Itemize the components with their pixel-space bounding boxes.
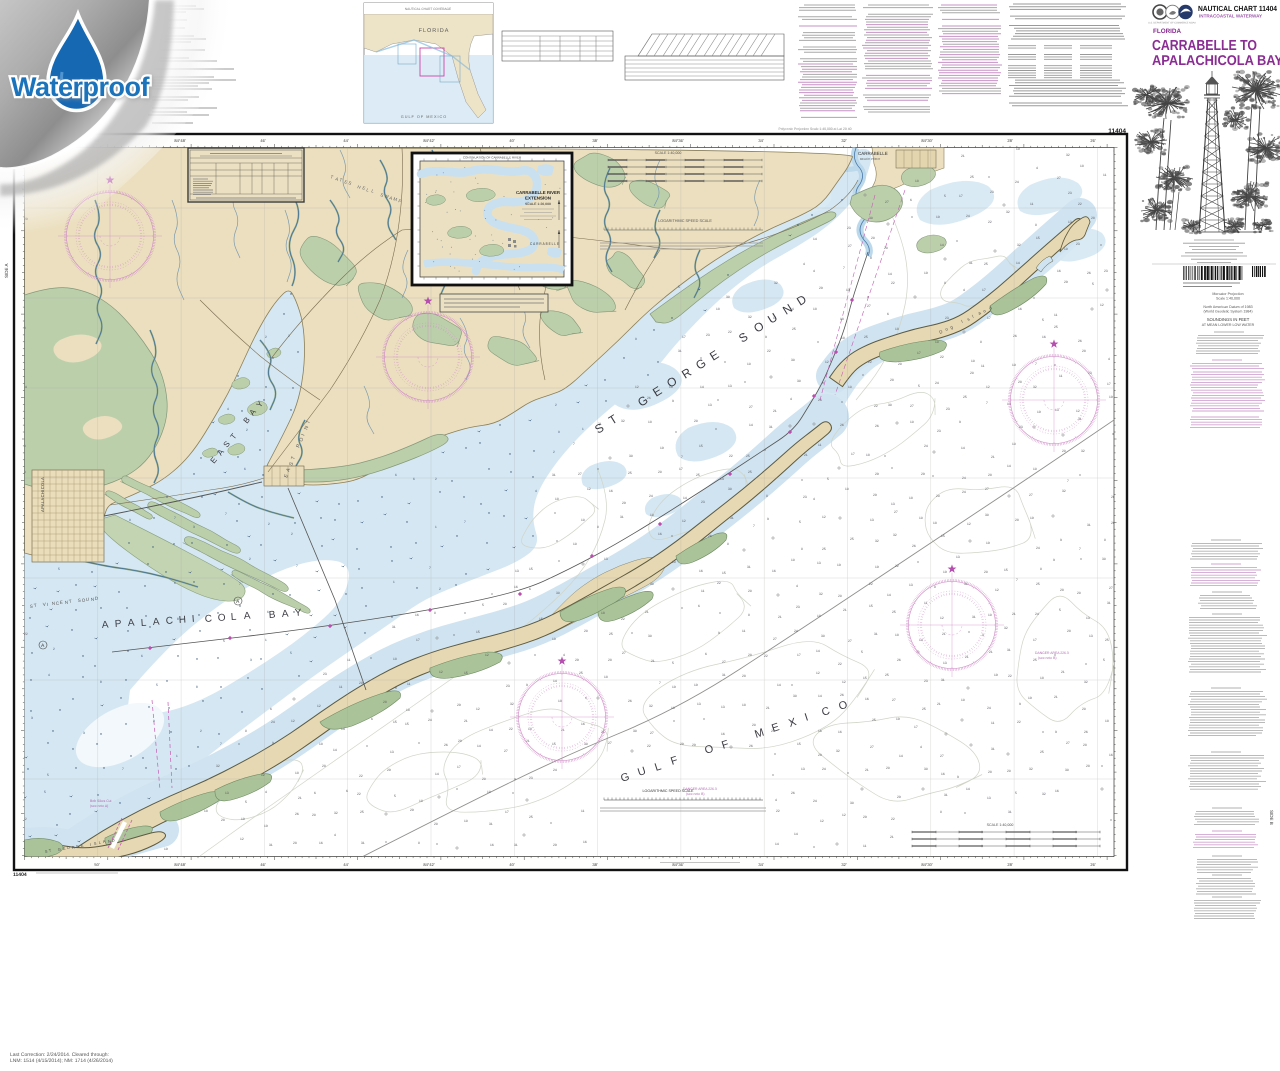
svg-text:24: 24: [1015, 180, 1019, 184]
svg-text:7: 7: [429, 566, 431, 570]
svg-text:30: 30: [924, 767, 928, 771]
svg-text:4: 4: [334, 833, 336, 837]
svg-text:15: 15: [405, 722, 409, 726]
svg-text:16: 16: [1042, 335, 1046, 339]
svg-text:6: 6: [529, 587, 531, 591]
svg-text:26: 26: [628, 699, 632, 703]
svg-text:17: 17: [416, 638, 420, 642]
svg-text:31: 31: [944, 793, 948, 797]
svg-text:25: 25: [922, 707, 926, 711]
svg-text:24: 24: [813, 799, 817, 803]
svg-text:7: 7: [1016, 578, 1018, 582]
svg-text:26: 26: [708, 534, 712, 538]
svg-text:14: 14: [700, 385, 704, 389]
svg-text:31: 31: [722, 673, 726, 677]
svg-text:24: 24: [962, 490, 966, 494]
svg-text:22: 22: [874, 404, 878, 408]
svg-text:15: 15: [699, 444, 703, 448]
svg-text:6: 6: [270, 707, 272, 711]
svg-text:6: 6: [705, 652, 707, 656]
svg-text:25: 25: [892, 610, 896, 614]
svg-text:21: 21: [766, 706, 770, 710]
svg-text:12: 12: [820, 819, 824, 823]
svg-text:26: 26: [1087, 271, 1091, 275]
svg-text:34': 34': [758, 138, 763, 143]
svg-text:9: 9: [765, 335, 767, 339]
svg-text:32: 32: [748, 315, 752, 319]
svg-text:23: 23: [1076, 242, 1080, 246]
svg-text:6: 6: [346, 789, 348, 793]
svg-text:S: S: [30, 604, 34, 609]
svg-text:INTRACOASTAL WATERWAY: INTRACOASTAL WATERWAY: [1199, 14, 1262, 19]
svg-text:4: 4: [790, 397, 792, 401]
svg-text:28: 28: [1067, 629, 1071, 633]
svg-text:16: 16: [1109, 753, 1113, 757]
svg-text:22: 22: [988, 220, 992, 224]
svg-text:27: 27: [1109, 586, 1113, 590]
svg-text:25: 25: [984, 262, 988, 266]
svg-text:31: 31: [620, 515, 624, 519]
svg-text:8: 8: [944, 281, 946, 285]
svg-text:32: 32: [621, 419, 625, 423]
svg-text:84°30': 84°30': [921, 138, 932, 143]
svg-text:13: 13: [817, 561, 821, 565]
svg-text:32: 32: [819, 592, 823, 596]
svg-text:25: 25: [628, 471, 632, 475]
svg-text:31: 31: [269, 843, 273, 847]
svg-text:14: 14: [477, 744, 481, 748]
svg-text:22: 22: [509, 727, 513, 731]
svg-text:11: 11: [1030, 202, 1034, 206]
svg-text:30: 30: [650, 582, 654, 586]
svg-text:27: 27: [1066, 741, 1070, 745]
svg-text:Y: Y: [294, 608, 302, 619]
svg-text:CONTINUATION OF CARRABELLE RIV: CONTINUATION OF CARRABELLE RIVER: [463, 156, 522, 160]
svg-text:84°48': 84°48': [174, 138, 185, 143]
svg-text:APALACHICOLA BAY: APALACHICOLA BAY: [1152, 53, 1280, 69]
svg-text:28: 28: [988, 770, 992, 774]
svg-text:5: 5: [58, 567, 60, 571]
svg-text:27: 27: [910, 404, 914, 408]
svg-text:5: 5: [482, 603, 484, 607]
svg-text:28: 28: [293, 841, 297, 845]
svg-text:14: 14: [940, 243, 944, 247]
svg-text:O: O: [217, 612, 226, 624]
svg-text:10: 10: [971, 359, 975, 363]
svg-text:28: 28: [1060, 588, 1064, 592]
svg-text:5: 5: [799, 520, 801, 524]
svg-text:13: 13: [515, 569, 519, 573]
svg-text:31: 31: [941, 678, 945, 682]
svg-text:18: 18: [895, 327, 899, 331]
svg-text:18: 18: [909, 496, 913, 500]
svg-text:24: 24: [962, 476, 966, 480]
svg-text:H: H: [178, 615, 186, 626]
svg-text:23: 23: [945, 316, 949, 320]
svg-text:21: 21: [991, 455, 995, 459]
svg-text:20: 20: [838, 594, 842, 598]
svg-text:21: 21: [651, 659, 655, 663]
svg-text:18: 18: [895, 633, 899, 637]
svg-text:12: 12: [317, 704, 321, 708]
svg-text:26: 26: [749, 744, 753, 748]
svg-text:20: 20: [658, 470, 662, 474]
svg-text:9: 9: [718, 631, 720, 635]
svg-text:28: 28: [890, 378, 894, 382]
svg-text:14: 14: [887, 593, 891, 597]
svg-text:18: 18: [716, 307, 720, 311]
svg-text:22: 22: [776, 809, 780, 813]
svg-text:18: 18: [555, 497, 559, 501]
svg-text:16: 16: [818, 729, 822, 733]
svg-text:31: 31: [392, 625, 396, 629]
svg-text:22: 22: [729, 454, 733, 458]
svg-text:18: 18: [1080, 164, 1084, 168]
svg-text:18: 18: [915, 179, 919, 183]
svg-text:21: 21: [843, 608, 847, 612]
svg-text:5: 5: [47, 773, 49, 777]
svg-text:13: 13: [846, 288, 850, 292]
svg-text:28': 28': [1007, 862, 1012, 867]
svg-text:7: 7: [239, 582, 241, 586]
svg-text:25: 25: [609, 632, 613, 636]
svg-text:8: 8: [980, 340, 982, 344]
svg-text:32: 32: [1042, 792, 1046, 796]
svg-text:AT MEAN LOWER LOW WATER: AT MEAN LOWER LOW WATER: [1202, 323, 1255, 327]
svg-text:13: 13: [1086, 616, 1090, 620]
svg-text:8: 8: [940, 810, 942, 814]
svg-text:8: 8: [801, 547, 803, 551]
svg-text:9: 9: [558, 430, 560, 434]
svg-text:5: 5: [156, 683, 158, 687]
svg-text:8: 8: [870, 256, 872, 260]
svg-text:A: A: [152, 617, 160, 628]
svg-text:11: 11: [339, 685, 343, 689]
svg-text:12: 12: [825, 360, 829, 364]
svg-text:Polyconic Projection Scale 1: Polyconic Projection Scale 1:40,000 at L…: [779, 127, 852, 131]
svg-text:14: 14: [749, 423, 753, 427]
svg-text:10: 10: [961, 698, 965, 702]
svg-text:27: 27: [749, 405, 753, 409]
svg-text:22: 22: [24, 632, 28, 636]
svg-text:5: 5: [944, 194, 946, 198]
svg-text:30: 30: [869, 216, 873, 220]
svg-text:11: 11: [347, 658, 351, 662]
svg-text:6: 6: [910, 198, 912, 202]
svg-text:15: 15: [941, 534, 945, 538]
svg-text:6: 6: [413, 477, 415, 481]
svg-text:5: 5: [1042, 318, 1044, 322]
svg-text:26: 26: [912, 544, 916, 548]
svg-text:13: 13: [891, 502, 895, 506]
svg-text:21: 21: [804, 453, 808, 457]
svg-text:20: 20: [1007, 769, 1011, 773]
svg-text:8: 8: [1104, 538, 1106, 542]
svg-text:5: 5: [678, 285, 680, 289]
svg-text:19: 19: [241, 817, 245, 821]
svg-text:U.S. DEPARTMENT OF COMMERCE N: U.S. DEPARTMENT OF COMMERCE NOAA: [1148, 22, 1196, 25]
svg-text:7: 7: [464, 520, 466, 524]
svg-text:18: 18: [866, 453, 870, 457]
svg-text:10: 10: [935, 340, 939, 344]
svg-text:25: 25: [872, 718, 876, 722]
svg-text:25: 25: [579, 671, 583, 675]
svg-text:30: 30: [1065, 768, 1069, 772]
svg-text:5: 5: [861, 650, 863, 654]
svg-text:21: 21: [890, 835, 894, 839]
svg-text:1: 1: [265, 638, 267, 642]
svg-text:28: 28: [748, 653, 752, 657]
svg-text:7: 7: [681, 455, 683, 459]
svg-text:6: 6: [174, 581, 176, 585]
svg-text:18: 18: [1105, 719, 1109, 723]
svg-text:10: 10: [1064, 247, 1068, 251]
svg-text:6: 6: [314, 791, 316, 795]
svg-text:14: 14: [794, 832, 798, 836]
svg-text:4: 4: [803, 262, 805, 266]
svg-text:15: 15: [393, 720, 397, 724]
svg-text:16: 16: [514, 585, 518, 589]
svg-text:29: 29: [873, 493, 877, 497]
svg-text:13: 13: [956, 555, 960, 559]
svg-text:28: 28: [1082, 349, 1086, 353]
svg-text:14: 14: [553, 679, 557, 683]
svg-text:5: 5: [1092, 282, 1094, 286]
svg-text:29: 29: [897, 795, 901, 799]
svg-text:5: 5: [918, 384, 920, 388]
svg-text:18: 18: [319, 742, 323, 746]
svg-text:23: 23: [847, 226, 851, 230]
svg-text:22: 22: [895, 564, 899, 568]
svg-text:30: 30: [629, 454, 633, 458]
svg-text:19: 19: [837, 563, 841, 567]
svg-text:14: 14: [683, 496, 687, 500]
svg-text:23: 23: [803, 495, 807, 499]
svg-text:U: U: [86, 597, 90, 602]
svg-text:29: 29: [863, 815, 867, 819]
svg-text:19: 19: [164, 847, 168, 851]
svg-text:32: 32: [1066, 153, 1070, 157]
svg-text:12: 12: [967, 522, 971, 526]
svg-text:6: 6: [698, 604, 700, 608]
svg-text:32: 32: [510, 702, 514, 706]
svg-text:4: 4: [1108, 357, 1110, 361]
svg-text:13: 13: [721, 705, 725, 709]
svg-text:7: 7: [753, 524, 755, 528]
svg-text:3: 3: [193, 525, 195, 529]
svg-text:13: 13: [390, 750, 394, 754]
svg-text:29: 29: [692, 743, 696, 747]
svg-text:27: 27: [504, 749, 508, 753]
svg-text:27: 27: [578, 472, 582, 476]
svg-text:20: 20: [312, 813, 316, 817]
svg-text:84°48': 84°48': [174, 862, 185, 867]
svg-text:44': 44': [343, 138, 348, 143]
svg-text:29: 29: [680, 742, 684, 746]
svg-text:34': 34': [758, 862, 763, 867]
svg-text:23: 23: [529, 776, 533, 780]
svg-text:84°42': 84°42': [423, 862, 434, 867]
svg-text:2: 2: [265, 335, 267, 339]
svg-text:25: 25: [850, 537, 854, 541]
svg-text:14: 14: [961, 446, 965, 450]
svg-text:8: 8: [1040, 567, 1042, 571]
svg-text:3: 3: [83, 731, 85, 735]
svg-text:32: 32: [893, 533, 897, 537]
svg-text:11404: 11404: [13, 872, 27, 878]
svg-text:29: 29: [457, 703, 461, 707]
svg-text:4: 4: [813, 497, 815, 501]
svg-text:NAUTICAL CHART 11404: NAUTICAL CHART 11404: [1198, 4, 1278, 13]
svg-text:7: 7: [225, 512, 227, 516]
svg-text:22: 22: [868, 360, 872, 364]
svg-text:46': 46': [260, 138, 265, 143]
svg-text:7: 7: [122, 767, 124, 771]
svg-text:24: 24: [966, 214, 970, 218]
svg-text:5: 5: [672, 661, 674, 665]
svg-text:16: 16: [319, 841, 323, 845]
svg-text:19: 19: [1030, 516, 1034, 520]
svg-text:17: 17: [682, 335, 686, 339]
svg-text:22: 22: [728, 330, 732, 334]
svg-text:31: 31: [678, 349, 682, 353]
svg-text:16: 16: [415, 613, 419, 617]
svg-text:30: 30: [985, 513, 989, 517]
svg-text:9: 9: [153, 719, 155, 723]
svg-text:27: 27: [870, 745, 874, 749]
svg-text:7: 7: [843, 266, 845, 270]
svg-text:32': 32': [841, 862, 846, 867]
svg-text:27: 27: [894, 510, 898, 514]
svg-text:29: 29: [575, 658, 579, 662]
svg-text:14: 14: [341, 727, 345, 731]
svg-text:31: 31: [361, 841, 365, 845]
svg-text:25: 25: [1040, 750, 1044, 754]
svg-text:12: 12: [842, 680, 846, 684]
svg-text:84°42': 84°42': [423, 138, 434, 143]
svg-text:29: 29: [458, 739, 462, 743]
svg-text:SIDE B: SIDE B: [1269, 810, 1274, 825]
svg-text:28: 28: [383, 700, 387, 704]
svg-text:SCALE 1:40,000: SCALE 1:40,000: [655, 151, 682, 155]
svg-text:2: 2: [435, 477, 437, 481]
svg-text:32: 32: [1084, 680, 1088, 684]
svg-text:26: 26: [791, 791, 795, 795]
svg-text:23: 23: [1104, 269, 1108, 273]
svg-text:16: 16: [609, 489, 613, 493]
svg-text:30: 30: [888, 403, 892, 407]
svg-text:16: 16: [721, 732, 725, 736]
svg-text:25: 25: [1105, 638, 1109, 642]
svg-text:12: 12: [940, 616, 944, 620]
svg-text:17: 17: [1107, 382, 1111, 386]
svg-text:NAUTICAL CHART COVERAGE: NAUTICAL CHART COVERAGE: [405, 7, 451, 11]
svg-text:18: 18: [817, 614, 821, 618]
svg-text:12: 12: [1076, 409, 1080, 413]
svg-text:CARRABELLE TO: CARRABELLE TO: [1152, 38, 1257, 54]
svg-text:31: 31: [514, 843, 518, 847]
svg-text:32: 32: [1017, 243, 1021, 247]
svg-text:13: 13: [225, 791, 229, 795]
svg-text:13: 13: [1068, 220, 1072, 224]
svg-text:18: 18: [295, 771, 299, 775]
svg-text:29: 29: [622, 501, 626, 505]
svg-text:14: 14: [777, 683, 781, 687]
svg-text:26: 26: [840, 423, 844, 427]
svg-text:27: 27: [773, 637, 777, 641]
svg-text:18: 18: [841, 336, 845, 340]
svg-text:21: 21: [561, 728, 565, 732]
svg-text:CARRABELLE: CARRABELLE: [858, 151, 888, 156]
svg-text:11: 11: [1059, 374, 1063, 378]
svg-text:32: 32: [875, 539, 879, 543]
svg-text:40': 40': [509, 138, 514, 143]
svg-text:31: 31: [747, 565, 751, 569]
svg-text:24: 24: [553, 768, 557, 772]
svg-text:2: 2: [291, 532, 293, 536]
svg-text:7: 7: [220, 742, 222, 746]
svg-text:19: 19: [1028, 696, 1032, 700]
svg-text:32: 32: [649, 704, 653, 708]
svg-text:22: 22: [838, 662, 842, 666]
svg-text:18: 18: [742, 703, 746, 707]
svg-text:31: 31: [972, 615, 976, 619]
svg-text:17: 17: [917, 351, 921, 355]
svg-text:32: 32: [1004, 626, 1008, 630]
svg-text:4: 4: [227, 407, 229, 411]
svg-text:23: 23: [946, 407, 950, 411]
svg-text:13: 13: [728, 384, 732, 388]
svg-text:25: 25: [864, 335, 868, 339]
svg-text:9: 9: [1055, 730, 1057, 734]
svg-text:22: 22: [1017, 720, 1021, 724]
svg-text:14: 14: [435, 772, 439, 776]
svg-text:23: 23: [506, 684, 510, 688]
svg-text:4: 4: [265, 790, 267, 794]
svg-text:10: 10: [919, 516, 923, 520]
svg-text:9: 9: [272, 741, 274, 745]
svg-text:16: 16: [941, 772, 945, 776]
svg-text:12: 12: [816, 671, 820, 675]
svg-text:21: 21: [961, 154, 965, 158]
svg-text:7: 7: [1035, 362, 1037, 366]
svg-text:30: 30: [633, 729, 637, 733]
svg-text:4: 4: [775, 798, 777, 802]
svg-text:5: 5: [290, 651, 292, 655]
svg-text:24: 24: [987, 706, 991, 710]
svg-text:4: 4: [963, 288, 965, 292]
svg-text:18: 18: [558, 699, 562, 703]
svg-text:31: 31: [1087, 523, 1091, 527]
svg-text:32: 32: [1029, 767, 1033, 771]
svg-text:13: 13: [870, 518, 874, 522]
svg-text:4: 4: [920, 745, 922, 749]
svg-text:A: A: [101, 620, 109, 631]
svg-text:11: 11: [1103, 173, 1107, 177]
svg-text:30: 30: [1102, 557, 1106, 561]
svg-text:(World Geodetic System 1984): (World Geodetic System 1984): [1203, 310, 1252, 314]
svg-text:32: 32: [216, 764, 220, 768]
svg-text:13: 13: [1007, 402, 1011, 406]
svg-text:27: 27: [622, 651, 626, 655]
svg-text:19: 19: [1109, 395, 1113, 399]
svg-text:23: 23: [706, 333, 710, 337]
svg-text:15: 15: [797, 742, 801, 746]
svg-text:7: 7: [573, 442, 575, 446]
svg-text:26: 26: [444, 743, 448, 747]
svg-text:(see note B): (see note B): [1038, 656, 1056, 660]
svg-text:17: 17: [505, 810, 509, 814]
